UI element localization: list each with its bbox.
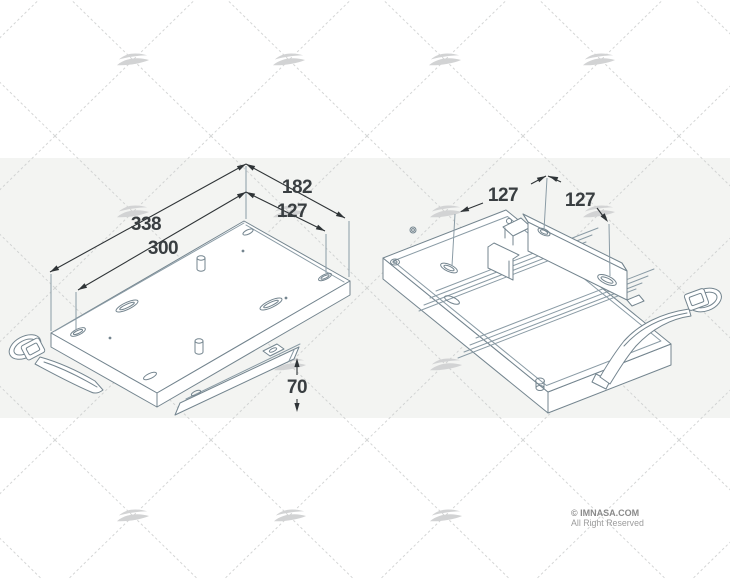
product-technical-drawing-image: 338 300 182 127 70 xyxy=(0,0,730,579)
dimension-label-127-right-b: 127 xyxy=(565,190,595,211)
rights-line: All Right Reserved xyxy=(571,518,644,528)
dimension-label-182: 182 xyxy=(282,177,312,198)
dimension-label-300: 300 xyxy=(148,238,178,259)
drawing-canvas: 338 300 182 127 70 xyxy=(0,0,730,579)
dimension-label-338: 338 xyxy=(131,214,161,235)
copyright-line: © IMNASA.COM xyxy=(571,508,639,518)
dimension-label-127-right-a: 127 xyxy=(488,185,518,206)
copyright-block: © IMNASA.COM All Right Reserved xyxy=(571,508,644,528)
dimension-label-70: 70 xyxy=(287,377,307,398)
dimension-label-127-left: 127 xyxy=(277,201,307,222)
